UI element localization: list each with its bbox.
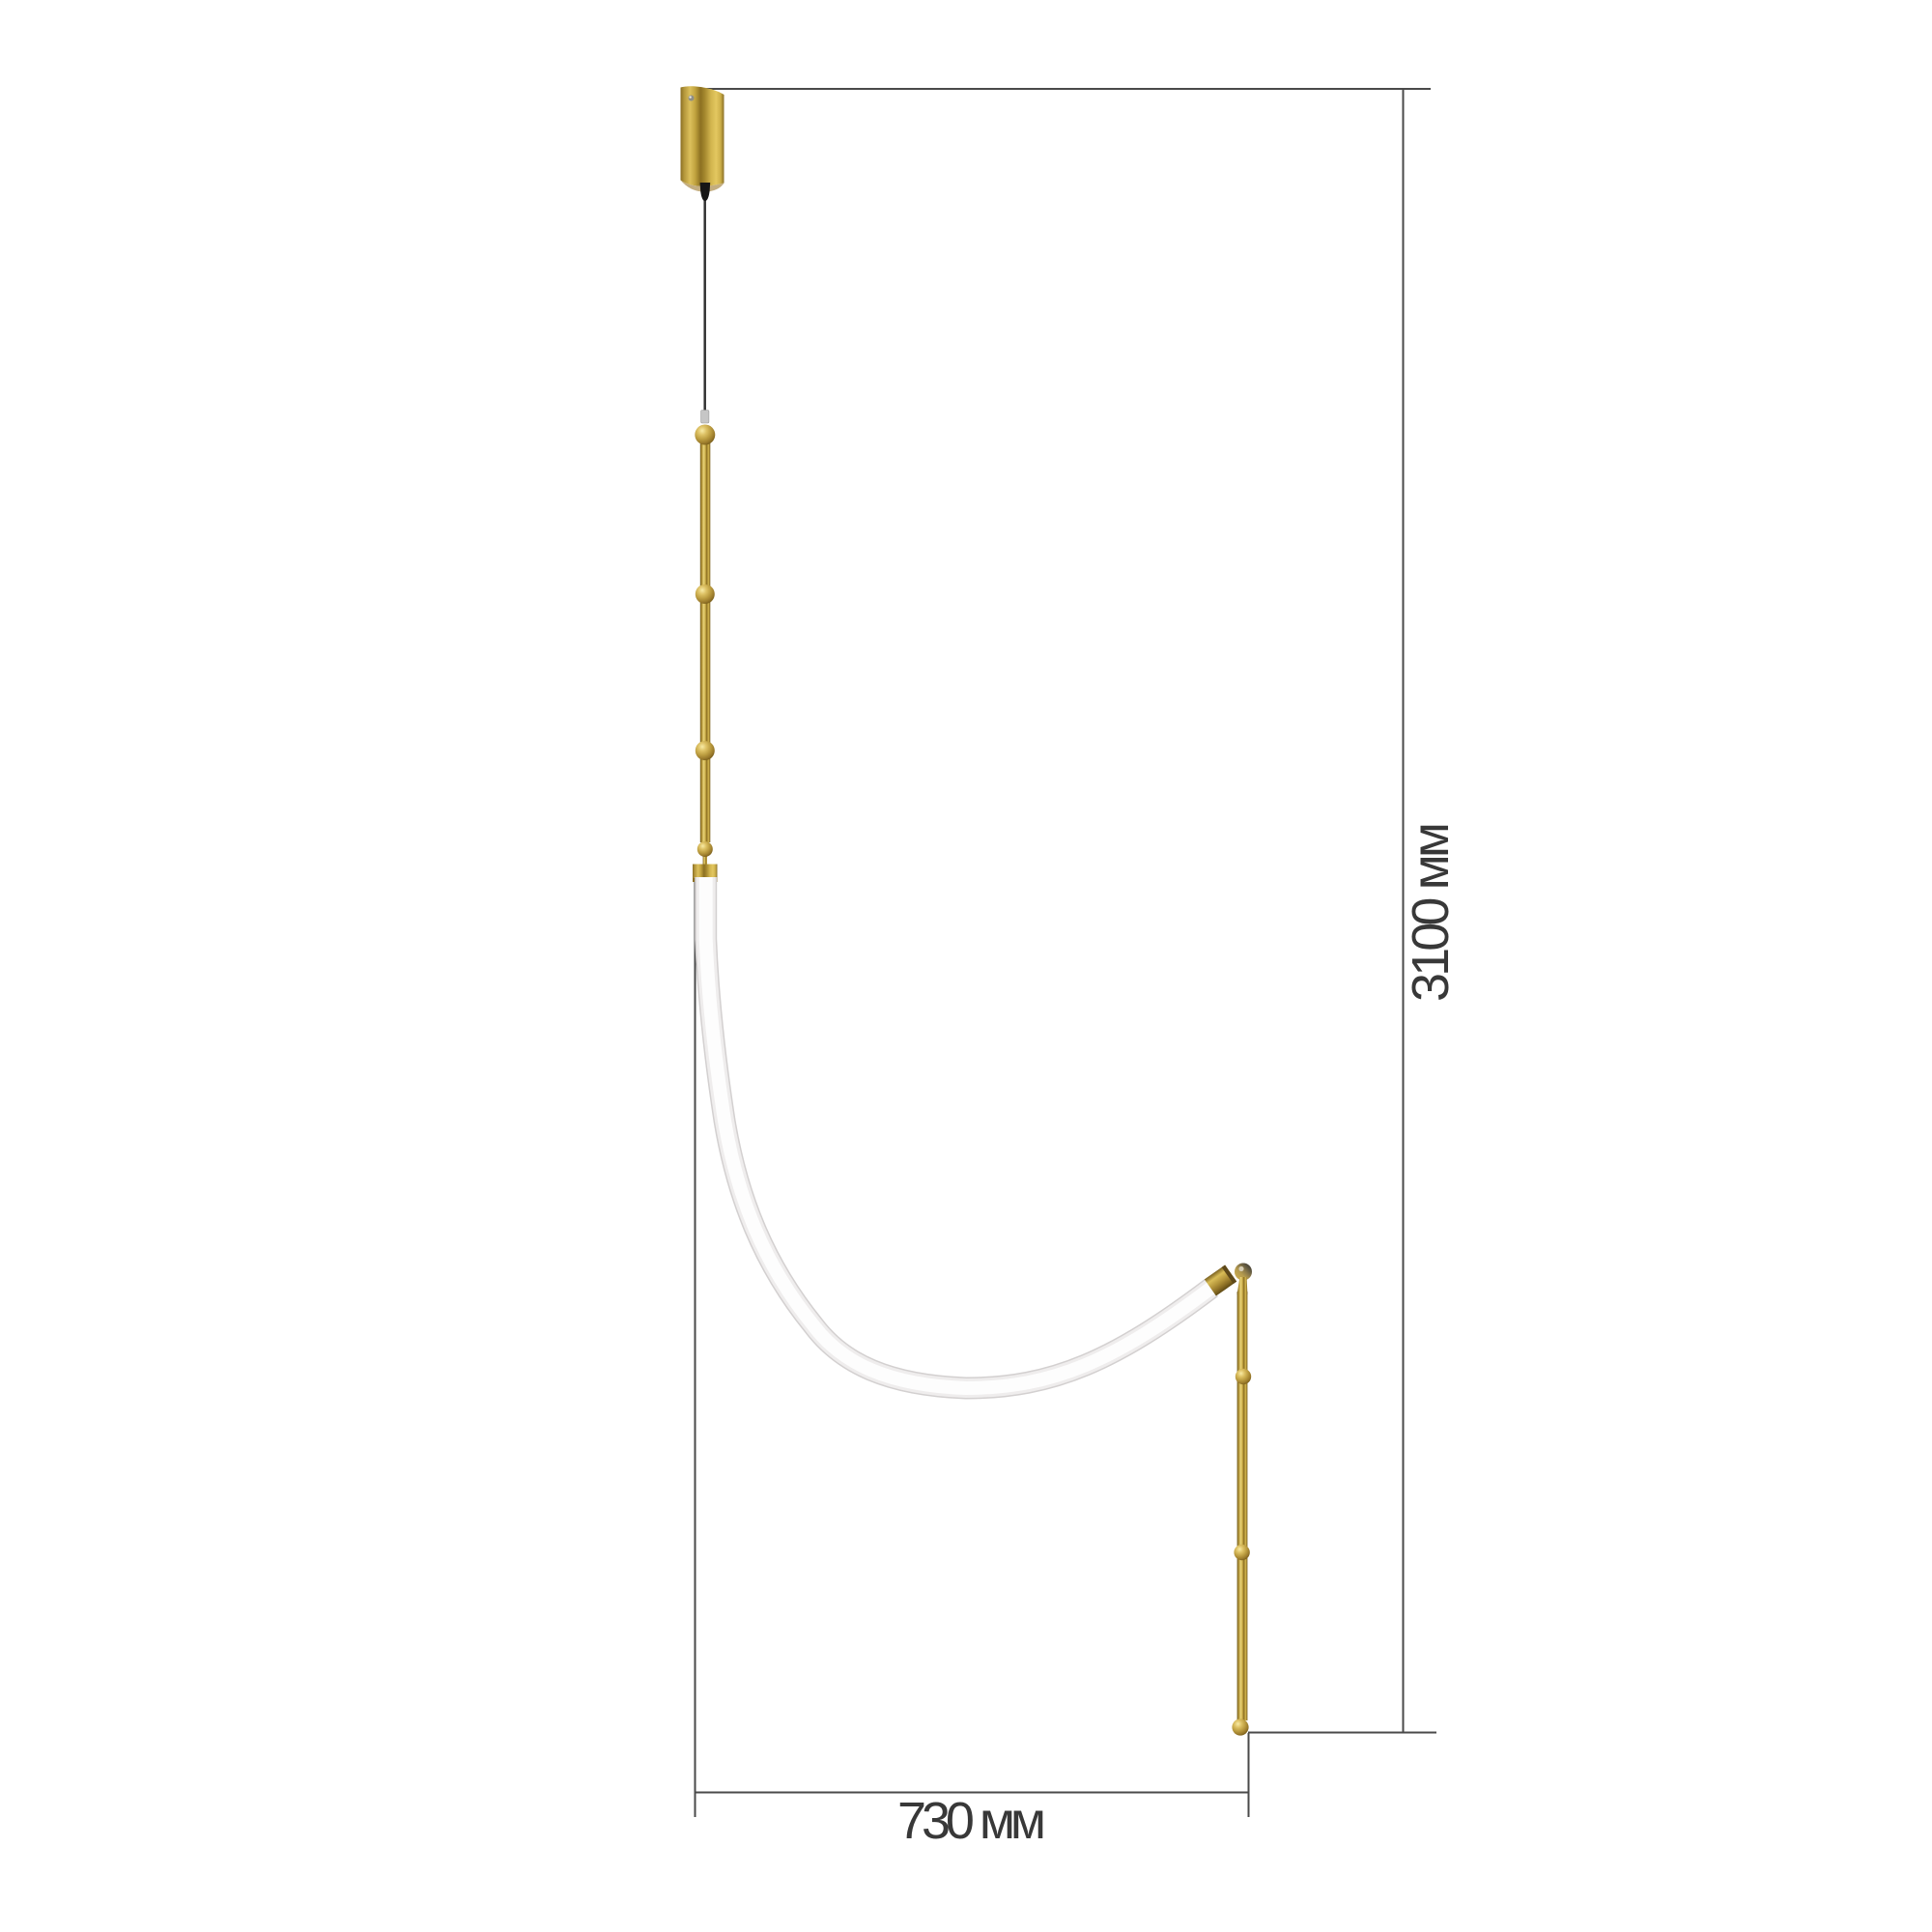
svg-text:3100 мм: 3100 мм [1402, 822, 1460, 1002]
svg-text:730 мм: 730 мм [897, 1792, 1046, 1850]
